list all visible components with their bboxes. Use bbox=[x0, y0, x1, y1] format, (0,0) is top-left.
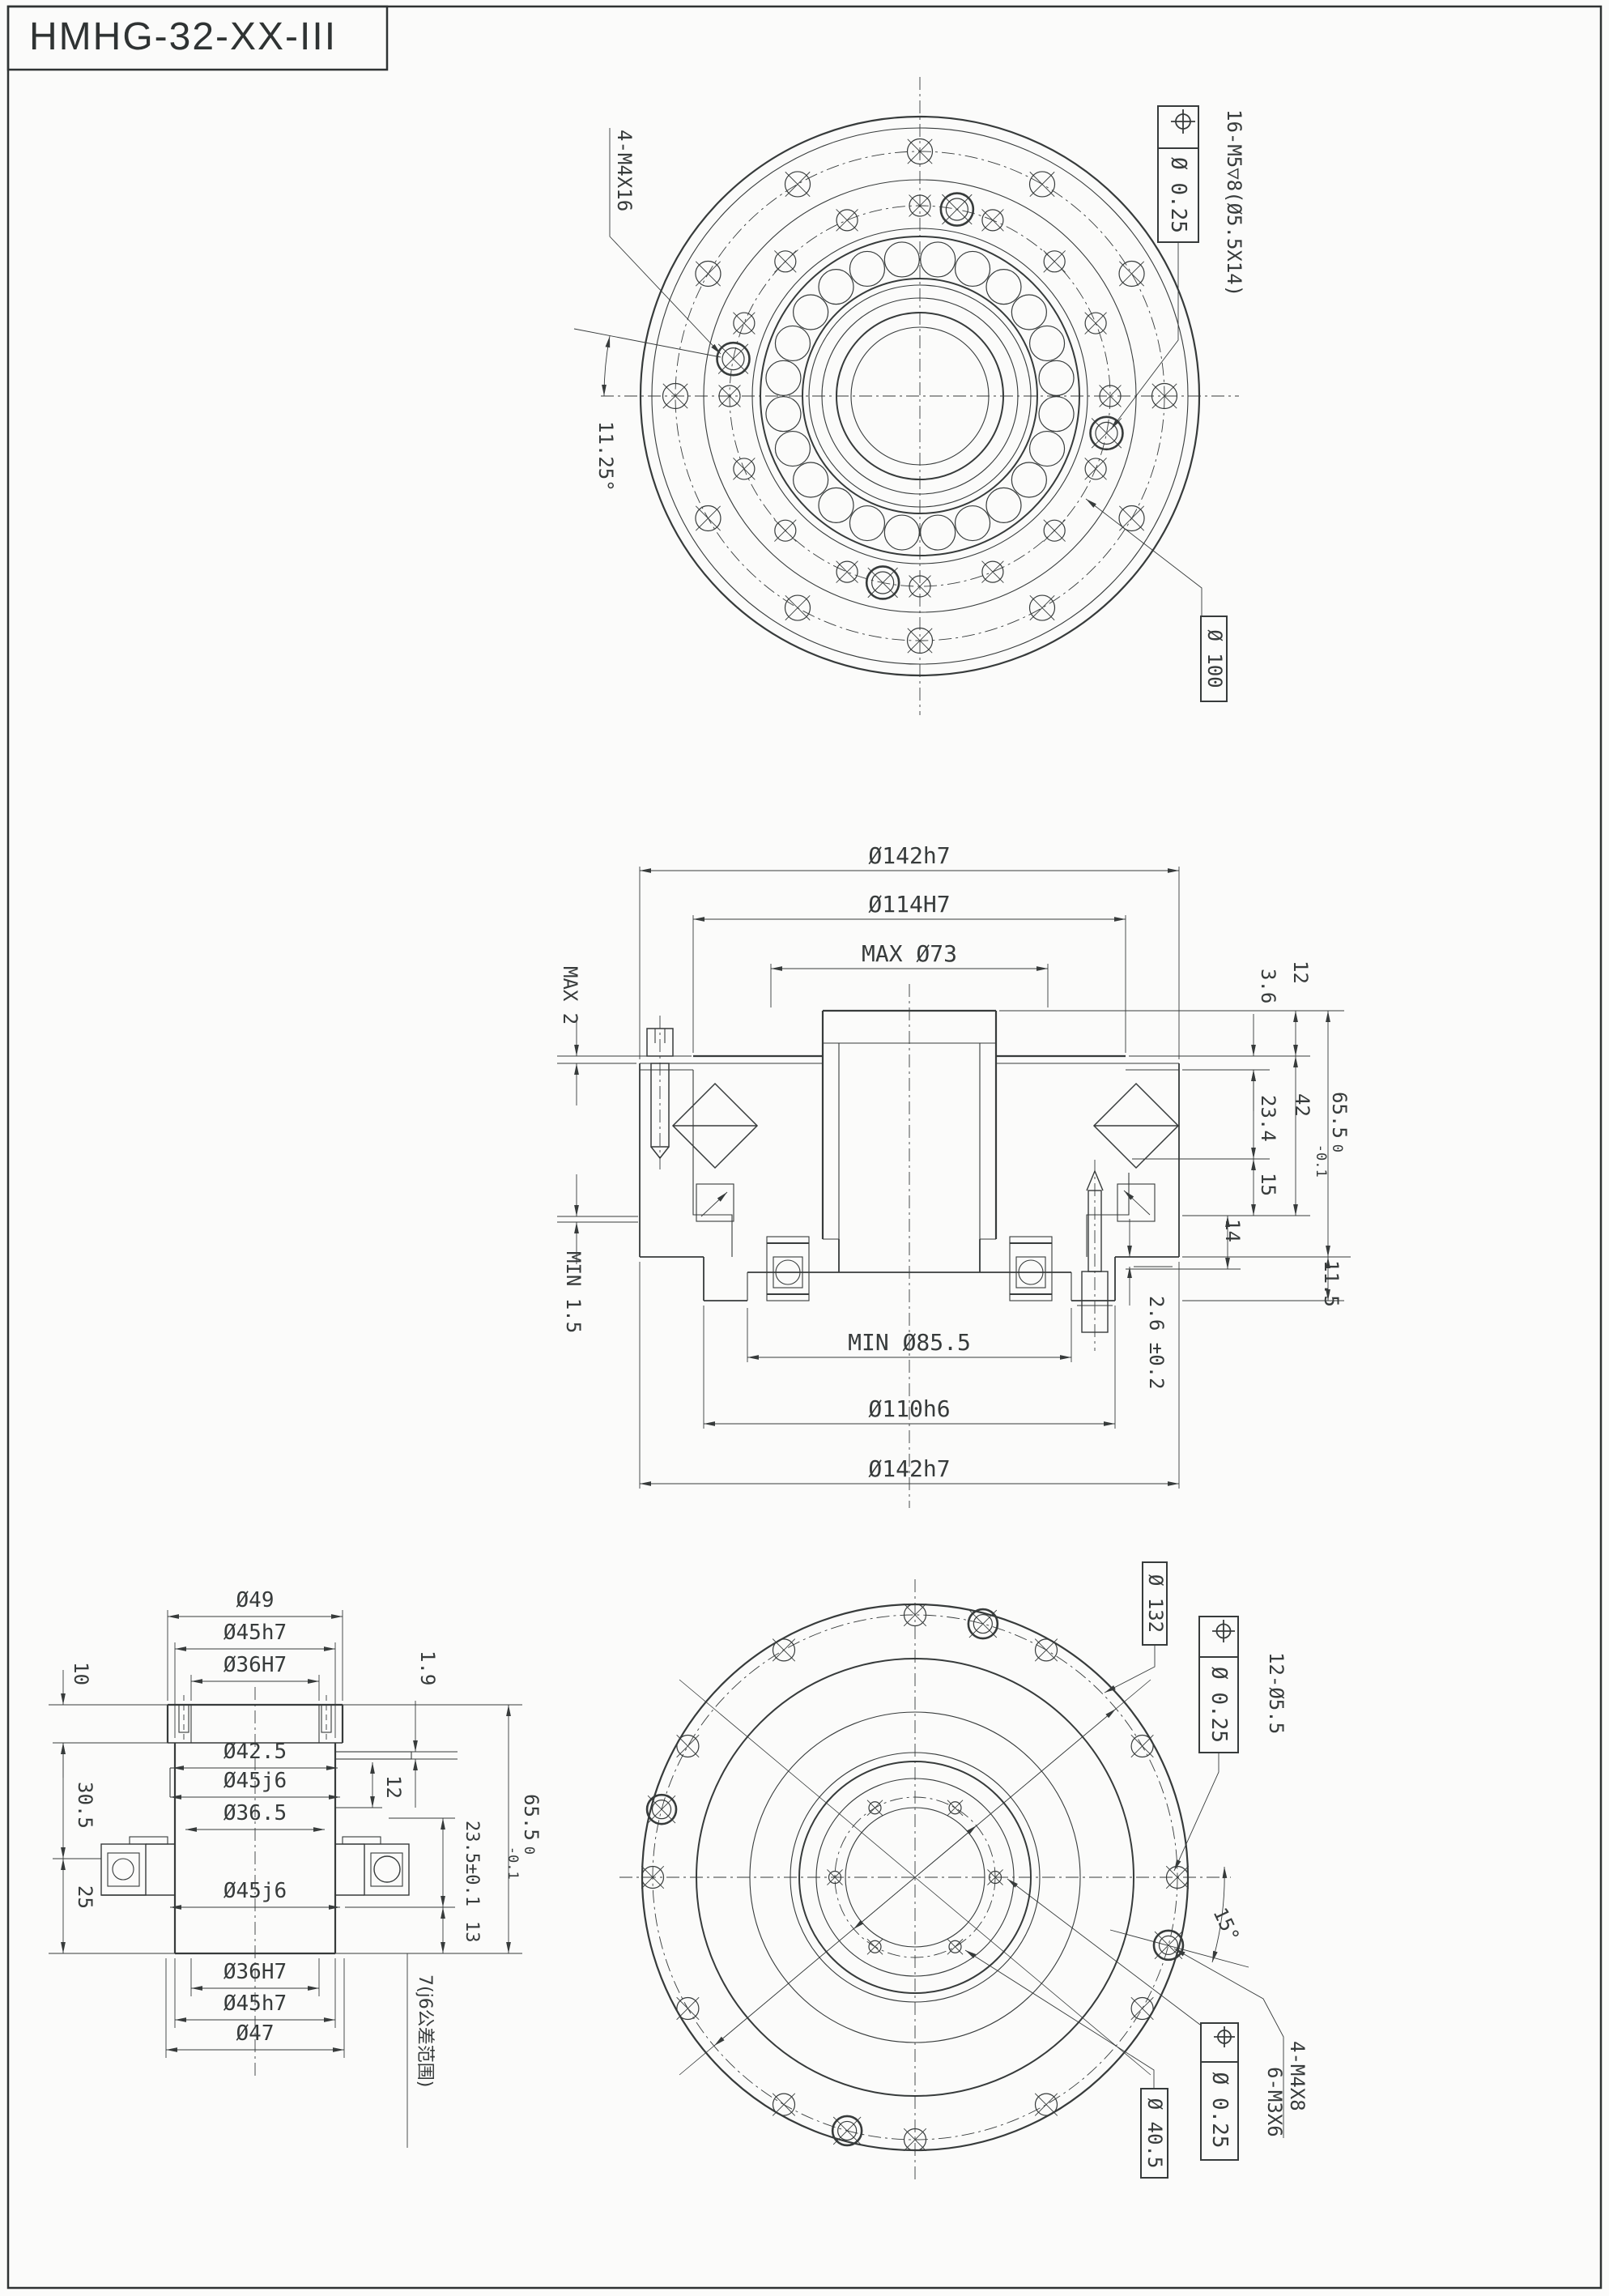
position-tolerance-icon bbox=[1159, 107, 1198, 149]
dim-len-1-9: 1.9 bbox=[417, 1651, 437, 1685]
dim-dia45h7-bottom: Ø45h7 bbox=[150, 1993, 360, 2015]
front-position-tolerance-value: Ø 0.25 bbox=[1159, 149, 1198, 241]
position-tolerance-icon bbox=[1202, 2024, 1237, 2063]
drawing-sheet: HMHG-32-XX-III 4-M4X16 11.25° Ø 0.25 16-… bbox=[0, 0, 1609, 2296]
rear-view-linework bbox=[619, 1579, 1283, 2180]
dim-dia114: Ø114H7 bbox=[788, 892, 1031, 916]
front-position-tolerance-frame: Ø 0.25 bbox=[1157, 105, 1199, 243]
rear-position-frame-inner: Ø 0.25 bbox=[1200, 2022, 1239, 2161]
tol-lower: -0.1 bbox=[504, 1847, 521, 1880]
dim-len-25: 25 bbox=[74, 1885, 95, 1909]
dim-height-65-5-value: 65.5 bbox=[1328, 1092, 1351, 1139]
dim-dia85-min: MIN Ø85.5 bbox=[788, 1331, 1031, 1354]
dim-len-30-5: 30.5 bbox=[74, 1782, 95, 1829]
dim-len-14: 14 bbox=[1222, 1219, 1242, 1242]
position-tolerance-icon bbox=[1200, 1617, 1237, 1658]
drawing-canvas bbox=[0, 0, 1609, 2296]
dim-dia42-5: Ø42.5 bbox=[150, 1741, 360, 1763]
dim-dia73-max: MAX Ø73 bbox=[788, 942, 1031, 965]
dim-len-13: 13 bbox=[462, 1921, 481, 1943]
rear-position-frame-outer: Ø 0.25 bbox=[1198, 1616, 1239, 1753]
rear-position-tolerance-inner-value: Ø 0.25 bbox=[1202, 2063, 1237, 2158]
dim-len-12-shaft: 12 bbox=[383, 1775, 403, 1799]
rear-bolt-circle-label: Ø 40.5 bbox=[1140, 2088, 1168, 2179]
dim-height-65-5: 65.50-0.1 bbox=[1313, 1092, 1349, 1178]
rear-tap-note: 6-M3X6 bbox=[1264, 2067, 1284, 2137]
dim-len-12: 12 bbox=[1290, 961, 1310, 984]
dim-dia47: Ø47 bbox=[150, 2023, 360, 2045]
dim-height-65-5-shaft: 65.50-0.1 bbox=[504, 1794, 541, 1880]
front-angle-dim: 11.25° bbox=[595, 421, 615, 492]
front-bolt-circle-label: Ø 100 bbox=[1200, 616, 1228, 702]
tol-upper: 0 bbox=[1328, 1144, 1344, 1178]
dim-len-10: 10 bbox=[70, 1662, 91, 1685]
sheet-border bbox=[8, 6, 1601, 2288]
front-tap-note: 16-M5▽8(Ø5.5X14) bbox=[1224, 109, 1244, 296]
dim-dia142-top: Ø142h7 bbox=[788, 844, 1031, 867]
dim-dia36H7-bottom: Ø36H7 bbox=[150, 1962, 360, 1983]
rear-position-tolerance-outer-value: Ø 0.25 bbox=[1200, 1658, 1237, 1752]
dim-len-2-6: 2.6 ±0.2 bbox=[1146, 1296, 1166, 1390]
dim-gap-max: MAX 2 bbox=[560, 966, 580, 1024]
dim-dia49: Ø49 bbox=[150, 1590, 360, 1612]
dim-len-11-5: 11.5 bbox=[1321, 1260, 1341, 1307]
title-model-number: HMHG-32-XX-III bbox=[29, 15, 337, 59]
dim-dia110: Ø110h6 bbox=[788, 1397, 1031, 1421]
dim-len-15: 15 bbox=[1258, 1173, 1278, 1196]
dim-dia45h7-top: Ø45h7 bbox=[150, 1622, 360, 1644]
rear-screw-note: 4-M4X8 bbox=[1287, 2041, 1307, 2111]
rear-hole-note: 12-Ø5.5 bbox=[1266, 1652, 1286, 1734]
dim-dia36-5: Ø36.5 bbox=[150, 1803, 360, 1825]
dim-gap-min: MIN 1.5 bbox=[563, 1251, 583, 1333]
tol-lower: -0.1 bbox=[1313, 1144, 1329, 1178]
dim-len-42: 42 bbox=[1292, 1093, 1312, 1117]
tolerance-range-note: 7(j6公差范围) bbox=[415, 1974, 434, 2087]
dim-dia45j6-mid: Ø45j6 bbox=[150, 1770, 360, 1792]
dim-height-65-5-value: 65.5 bbox=[520, 1794, 543, 1841]
dim-dia142-bottom: Ø142h7 bbox=[788, 1457, 1031, 1480]
dim-len-23-4: 23.4 bbox=[1258, 1095, 1278, 1142]
dim-dia45j6-low: Ø45j6 bbox=[150, 1881, 360, 1902]
front-view-linework bbox=[574, 77, 1239, 715]
dim-len-23-5: 23.5±0.1 bbox=[462, 1821, 481, 1906]
dim-len-3-6: 3.6 bbox=[1258, 969, 1278, 1003]
tol-upper: 0 bbox=[520, 1847, 536, 1880]
rear-dia132-label: Ø 132 bbox=[1142, 1561, 1168, 1646]
front-screw-note: 4-M4X16 bbox=[614, 130, 634, 211]
dim-dia36H7-top: Ø36H7 bbox=[150, 1655, 360, 1676]
